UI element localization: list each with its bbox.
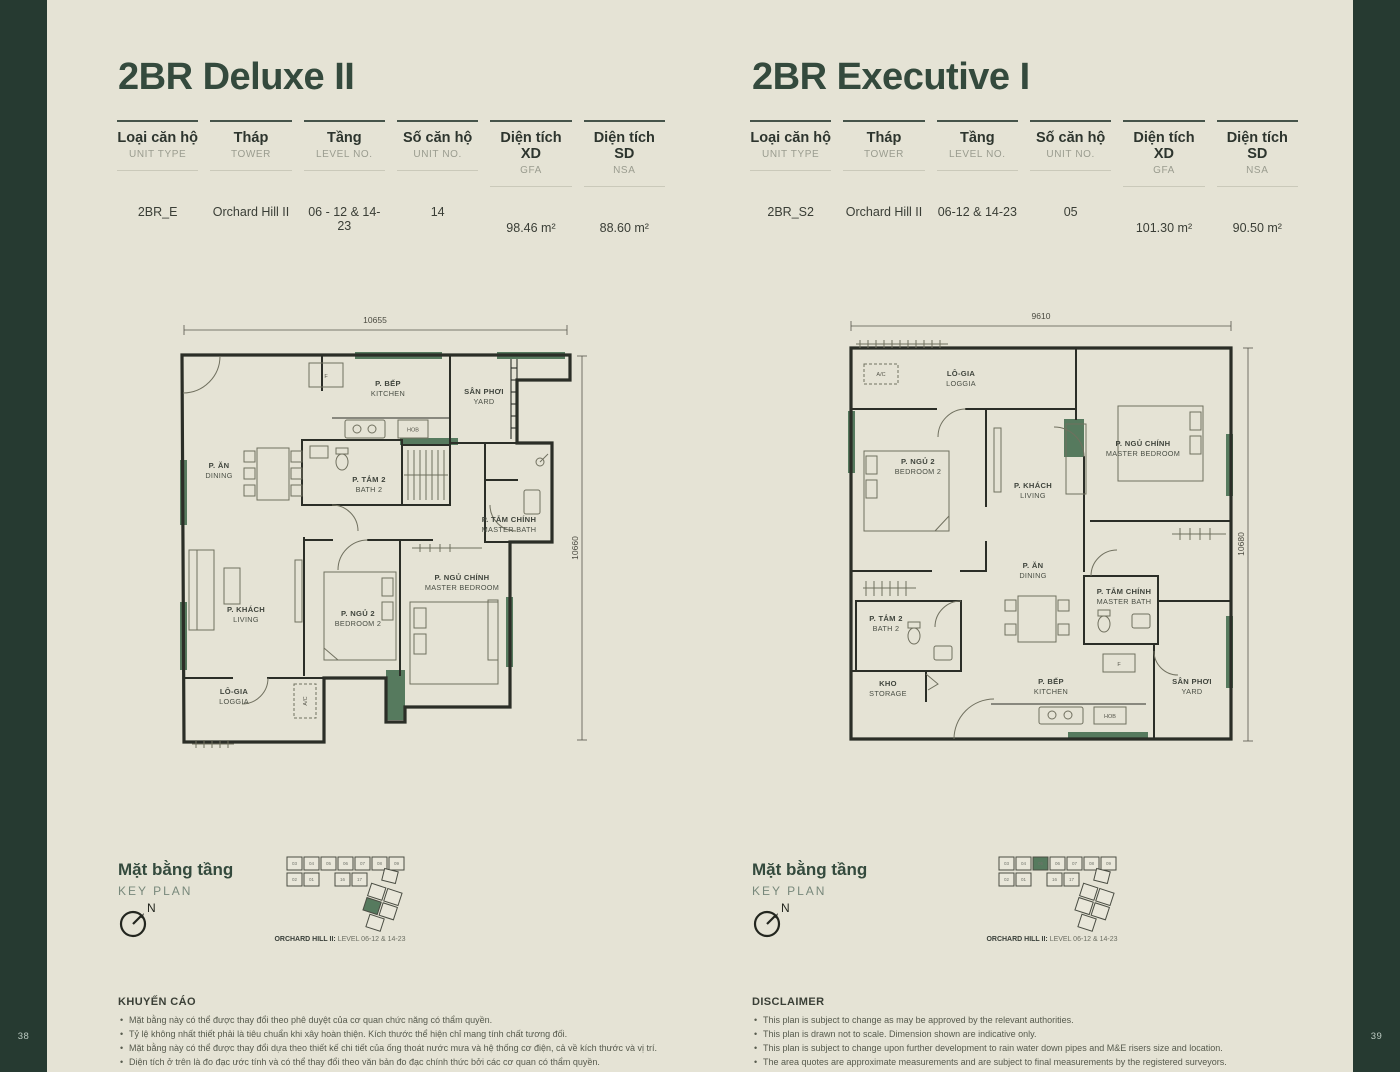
col-label-vn: Số căn hộ [1030, 130, 1111, 146]
svg-text:09: 09 [1106, 861, 1112, 866]
svg-text:STORAGE: STORAGE [869, 689, 907, 698]
svg-text:P. TẮM CHÍNH: P. TẮM CHÍNH [482, 515, 537, 524]
cell-value: 2BR_S2 [750, 205, 831, 219]
svg-text:BEDROOM 2: BEDROOM 2 [335, 619, 382, 628]
disclaimer-item: Diện tích ở trên là đo đạc ước tính và c… [118, 1056, 678, 1070]
svg-text:P. KHÁCH: P. KHÁCH [1014, 481, 1052, 490]
disclaimer-en: DISCLAIMER This plan is subject to chang… [752, 996, 1312, 1070]
spec-col: Diện tích XD GFA 101.30 m² [1123, 120, 1204, 235]
col-label-en: UNIT NO. [397, 149, 478, 160]
disclaimer-item: Mặt bằng này có thể được thay đổi theo p… [118, 1014, 678, 1028]
svg-text:01: 01 [309, 877, 315, 882]
svg-text:P. BẾP: P. BẾP [1038, 676, 1064, 686]
col-label-vn: Tháp [843, 130, 924, 146]
disclaimer-item: This plan is subject to change as may be… [752, 1014, 1312, 1028]
keyplan-caption: ORCHARD HILL II: LEVEL 06-12 & 14-23 [250, 936, 430, 943]
svg-text:MASTER BATH: MASTER BATH [482, 525, 537, 534]
keyplan-heading-vn: Mặt bằng tầng [752, 860, 867, 880]
disclaimer-item: This plan is drawn not to scale. Dimensi… [752, 1028, 1312, 1042]
svg-text:P. NGỦ 2: P. NGỦ 2 [901, 457, 935, 466]
unit-title-executive: 2BR Executive I [752, 56, 1030, 99]
svg-text:07: 07 [1072, 861, 1078, 866]
spec-col: Số căn hộ UNIT NO. 05 [1030, 120, 1111, 235]
svg-text:17: 17 [1069, 877, 1075, 882]
cell-value: 90.50 m² [1217, 221, 1298, 235]
unit-title-deluxe: 2BR Deluxe II [118, 56, 354, 99]
col-label-vn: Tầng [304, 130, 385, 146]
cell-value: 2BR_E [117, 205, 198, 219]
cell-value: 88.60 m² [584, 221, 665, 235]
divider [397, 170, 478, 171]
divider [304, 170, 385, 171]
svg-text:LIVING: LIVING [1020, 491, 1046, 500]
svg-text:02: 02 [1004, 877, 1010, 882]
svg-text:P. ĂN: P. ĂN [209, 461, 230, 470]
svg-text:BATH 2: BATH 2 [873, 624, 900, 633]
disclaimer-item: Mặt bằng này có thể được thay đổi dựa th… [118, 1042, 678, 1056]
svg-text:P. KHÁCH: P. KHÁCH [227, 605, 265, 614]
col-label-vn: Tháp [210, 130, 291, 146]
cell-value: Orchard Hill II [843, 205, 924, 219]
col-label-vn: Diện tích SD [1217, 130, 1298, 162]
keyplan-heading-en: KEY PLAN [752, 884, 826, 898]
hob-label: HOB [1104, 714, 1116, 720]
svg-text:P. BẾP: P. BẾP [375, 378, 401, 388]
divider [843, 170, 924, 171]
cell-value: 06-12 & 14-23 [937, 205, 1018, 219]
divider [937, 170, 1018, 171]
divider [490, 186, 571, 187]
divider [584, 186, 665, 187]
spec-col: Tầng LEVEL NO. 06 - 12 & 14-23 [304, 120, 385, 235]
svg-text:04: 04 [1021, 861, 1027, 866]
spec-col: Loại căn hộ UNIT TYPE 2BR_S2 [750, 120, 831, 235]
spec-col: Tầng LEVEL NO. 06-12 & 14-23 [937, 120, 1018, 235]
col-label-en: GFA [490, 165, 571, 176]
brochure-spread: 38 39 2BR Deluxe II Loại căn hộ UNIT TYP… [0, 0, 1400, 1072]
svg-text:KHO: KHO [879, 679, 897, 688]
svg-text:17: 17 [357, 877, 363, 882]
svg-text:BATH 2: BATH 2 [356, 485, 383, 494]
svg-text:N: N [147, 901, 156, 915]
svg-text:16: 16 [1052, 877, 1058, 882]
ac-label: A/C [876, 372, 885, 378]
col-label-en: LEVEL NO. [937, 149, 1018, 160]
floorplan-executive: 9610 10680 [836, 306, 1261, 761]
svg-text:YARD: YARD [474, 397, 495, 406]
disclaimer-list: This plan is subject to change as may be… [752, 1014, 1312, 1070]
svg-text:SÂN PHƠI: SÂN PHƠI [1172, 677, 1212, 686]
svg-text:P. ĂN: P. ĂN [1023, 561, 1044, 570]
keyplan-heading-en: KEY PLAN [118, 884, 192, 898]
col-label-en: GFA [1123, 165, 1204, 176]
svg-text:MASTER BEDROOM: MASTER BEDROOM [425, 583, 499, 592]
spec-col: Số căn hộ UNIT NO. 14 [397, 120, 478, 235]
svg-text:06: 06 [1055, 861, 1061, 866]
svg-text:N: N [781, 901, 790, 915]
disclaimer-heading: KHUYẾN CÁO [118, 996, 678, 1008]
spec-col: Tháp TOWER Orchard Hill II [210, 120, 291, 235]
svg-text:KITCHEN: KITCHEN [1034, 687, 1068, 696]
cell-value: 05 [1030, 205, 1111, 219]
svg-text:LÔ-GIA: LÔ-GIA [220, 687, 249, 696]
svg-text:05: 05 [326, 861, 332, 866]
divider [210, 170, 291, 171]
svg-text:YARD: YARD [1182, 687, 1203, 696]
spec-col: Diện tích SD NSA 90.50 m² [1217, 120, 1298, 235]
col-label-en: LEVEL NO. [304, 149, 385, 160]
plan-dim-width: 9610 [1032, 311, 1051, 321]
svg-text:BEDROOM 2: BEDROOM 2 [895, 467, 942, 476]
spec-table-deluxe: Loại căn hộ UNIT TYPE 2BR_E Tháp TOWER O… [117, 120, 665, 235]
keyplan-caption-tower: ORCHARD HILL II: [986, 936, 1047, 943]
col-label-en: UNIT NO. [1030, 149, 1111, 160]
spec-col: Loại căn hộ UNIT TYPE 2BR_E [117, 120, 198, 235]
spec-col: Tháp TOWER Orchard Hill II [843, 120, 924, 235]
disclaimer-item: This plan is subject to change upon furt… [752, 1042, 1312, 1056]
svg-text:01: 01 [1021, 877, 1027, 882]
svg-text:03: 03 [1004, 861, 1010, 866]
plan-dim-height: 10660 [570, 536, 580, 560]
keyplan-heading-vn: Mặt bằng tầng [118, 860, 233, 880]
svg-text:07: 07 [360, 861, 366, 866]
svg-text:SÂN PHƠI: SÂN PHƠI [464, 387, 504, 396]
disclaimer-item: The area quotes are approximate measurem… [752, 1056, 1312, 1070]
svg-text:08: 08 [377, 861, 383, 866]
divider [1217, 186, 1298, 187]
col-label-vn: Diện tích SD [584, 130, 665, 162]
spec-col: Diện tích SD NSA 88.60 m² [584, 120, 665, 235]
plan-dim-height: 10680 [1236, 532, 1246, 556]
cell-value: 101.30 m² [1123, 221, 1204, 235]
col-label-vn: Loại căn hộ [750, 130, 831, 146]
keyplan-caption-level: LEVEL 06-12 & 14-23 [1048, 936, 1118, 943]
svg-text:LOGGIA: LOGGIA [219, 697, 249, 706]
svg-text:08: 08 [1089, 861, 1095, 866]
spec-table-executive: Loại căn hộ UNIT TYPE 2BR_S2 Tháp TOWER … [750, 120, 1298, 235]
svg-text:DINING: DINING [1019, 571, 1046, 580]
col-label-en: NSA [584, 165, 665, 176]
disclaimer-item: Tỷ lệ không nhất thiết phải là tiêu chuẩ… [118, 1028, 678, 1042]
keyplan-caption: ORCHARD HILL II: LEVEL 06-12 & 14-23 [962, 936, 1142, 943]
svg-text:09: 09 [394, 861, 400, 866]
svg-text:16: 16 [340, 877, 346, 882]
col-label-vn: Diện tích XD [1123, 130, 1204, 162]
col-label-en: UNIT TYPE [117, 149, 198, 160]
disclaimer-heading: DISCLAIMER [752, 996, 1312, 1008]
divider [750, 170, 831, 171]
disclaimer-vn: KHUYẾN CÁO Mặt bằng này có thể được thay… [118, 996, 678, 1070]
ac-label: A/C [303, 696, 309, 705]
spec-col: Diện tích XD GFA 98.46 m² [490, 120, 571, 235]
left-page-edge-band [0, 0, 47, 1072]
col-label-vn: Tầng [937, 130, 1018, 146]
svg-text:04: 04 [309, 861, 315, 866]
divider [1030, 170, 1111, 171]
svg-text:03: 03 [292, 861, 298, 866]
col-label-en: TOWER [210, 149, 291, 160]
svg-text:P. TẮM 2: P. TẮM 2 [352, 475, 386, 484]
svg-text:DINING: DINING [205, 471, 232, 480]
floorplan-deluxe: 10655 10660 [172, 310, 597, 765]
divider [1123, 186, 1204, 187]
col-label-en: UNIT TYPE [750, 149, 831, 160]
fridge-label: F [1117, 662, 1121, 668]
compass-icon: N [748, 898, 794, 944]
fridge-label: F [324, 374, 328, 380]
compass-icon: N [114, 898, 160, 944]
cell-value: Orchard Hill II [210, 205, 291, 219]
svg-text:P. NGỦ CHÍNH: P. NGỦ CHÍNH [435, 573, 490, 582]
disclaimer-list: Mặt bằng này có thể được thay đổi theo p… [118, 1014, 678, 1070]
svg-text:02: 02 [292, 877, 298, 882]
svg-text:LÔ-GIA: LÔ-GIA [947, 369, 976, 378]
svg-text:P. TẮM 2: P. TẮM 2 [869, 614, 903, 623]
keyplan-caption-level: LEVEL 06-12 & 14-23 [336, 936, 406, 943]
svg-text:P. NGỦ 2: P. NGỦ 2 [341, 609, 375, 618]
plan-dim-width: 10655 [363, 315, 387, 325]
svg-text:MASTER BEDROOM: MASTER BEDROOM [1106, 449, 1180, 458]
svg-text:KITCHEN: KITCHEN [371, 389, 405, 398]
divider [117, 170, 198, 171]
keyplan-diagram-executive: 0304 0506 0708 09 0201 1617 [995, 851, 1119, 933]
svg-text:LOGGIA: LOGGIA [946, 379, 976, 388]
svg-text:P. TẮM CHÍNH: P. TẮM CHÍNH [1097, 587, 1152, 596]
page-number-right: 39 [1353, 1031, 1400, 1042]
right-page-edge-band [1353, 0, 1400, 1072]
col-label-vn: Số căn hộ [397, 130, 478, 146]
keyplan-diagram-deluxe: 0304 0506 0708 09 0201 1617 [283, 851, 407, 933]
cell-value: 98.46 m² [490, 221, 571, 235]
svg-text:06: 06 [343, 861, 349, 866]
page-number-left: 38 [0, 1031, 47, 1042]
cell-value: 14 [397, 205, 478, 219]
svg-text:MASTER BATH: MASTER BATH [1097, 597, 1152, 606]
svg-text:LIVING: LIVING [233, 615, 259, 624]
hob-label: HOB [407, 428, 419, 434]
svg-text:05: 05 [1038, 861, 1044, 866]
col-label-en: NSA [1217, 165, 1298, 176]
col-label-vn: Loại căn hộ [117, 130, 198, 146]
svg-text:P. NGỦ CHÍNH: P. NGỦ CHÍNH [1116, 439, 1171, 448]
cell-value: 06 - 12 & 14-23 [304, 205, 385, 233]
col-label-vn: Diện tích XD [490, 130, 571, 162]
col-label-en: TOWER [843, 149, 924, 160]
keyplan-caption-tower: ORCHARD HILL II: [274, 936, 335, 943]
